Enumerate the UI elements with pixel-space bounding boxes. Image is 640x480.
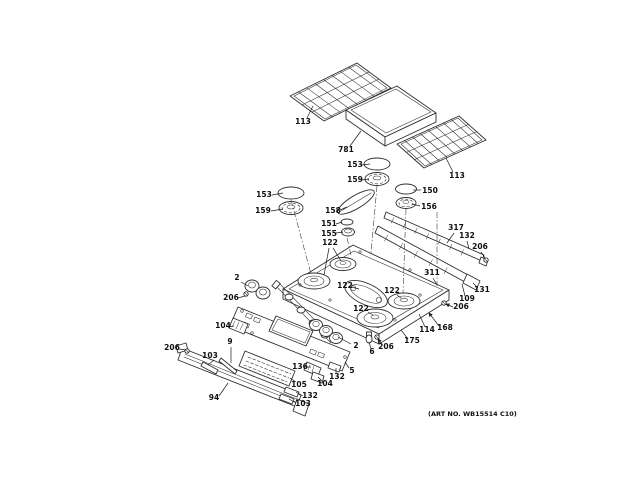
- part-label-175: 175: [401, 330, 420, 345]
- svg-text:151: 151: [321, 219, 337, 228]
- svg-text:131: 131: [474, 285, 490, 294]
- svg-text:175: 175: [404, 336, 420, 345]
- svg-text:159: 159: [255, 206, 271, 215]
- svg-text:9: 9: [227, 337, 232, 346]
- svg-text:150: 150: [422, 186, 438, 195]
- svg-text:5: 5: [349, 366, 354, 375]
- svg-text:156: 156: [421, 202, 437, 211]
- svg-text:311: 311: [424, 268, 440, 277]
- svg-text:94: 94: [209, 393, 219, 402]
- part-label-150: 150: [413, 186, 438, 195]
- igniter-6: [366, 332, 372, 343]
- svg-text:206: 206: [223, 293, 239, 302]
- part-label-206: 206: [446, 302, 469, 311]
- exploded-parts-diagram: 1137811131531591531591501561581511551223…: [0, 0, 640, 480]
- svg-text:113: 113: [295, 117, 311, 126]
- svg-text:168: 168: [437, 323, 453, 332]
- svg-text:122: 122: [353, 304, 369, 313]
- control-knobs-loose: [245, 280, 270, 299]
- svg-text:132: 132: [459, 231, 475, 240]
- svg-text:155: 155: [321, 229, 337, 238]
- burner-base-122-back: [330, 258, 356, 271]
- part-label-113: 113: [446, 158, 465, 180]
- svg-text:132: 132: [329, 372, 345, 381]
- cap-155: [342, 228, 355, 236]
- svg-text:103: 103: [202, 351, 218, 360]
- svg-text:6: 6: [369, 347, 374, 356]
- svg-text:206: 206: [164, 343, 180, 352]
- ring-151: [341, 219, 353, 225]
- art-number: (ART NO. WB15514 C10): [428, 410, 517, 418]
- svg-text:153: 153: [256, 190, 272, 199]
- svg-text:781: 781: [338, 145, 354, 154]
- svg-text:153: 153: [347, 160, 363, 169]
- burner-base-122-right: [388, 293, 420, 309]
- svg-text:206: 206: [453, 302, 469, 311]
- svg-text:122: 122: [322, 238, 338, 247]
- svg-text:2: 2: [234, 273, 239, 282]
- part-label-155: 155: [321, 229, 343, 238]
- oval-burner-cap-158: [335, 186, 378, 219]
- svg-text:122: 122: [384, 286, 400, 295]
- svg-text:114: 114: [419, 325, 435, 334]
- burner-ring-150: [396, 184, 417, 194]
- part-label-131: 131: [473, 283, 490, 294]
- svg-text:206: 206: [472, 242, 488, 251]
- part-label-6: 6: [369, 342, 375, 356]
- svg-text:104: 104: [215, 321, 231, 330]
- burner-base-122-left: [298, 273, 330, 289]
- svg-text:103: 103: [295, 399, 311, 408]
- part-label-781: 781: [338, 131, 361, 154]
- burner-head-156: [396, 198, 416, 209]
- svg-text:159: 159: [347, 175, 363, 184]
- part-label-206: 206: [223, 293, 245, 302]
- svg-text:113: 113: [449, 171, 465, 180]
- burner-head-159-left: [279, 202, 303, 215]
- part-label-94: 94: [209, 383, 228, 402]
- svg-text:122: 122: [337, 281, 353, 290]
- svg-text:2: 2: [353, 341, 358, 350]
- svg-text:206: 206: [378, 342, 394, 351]
- part-label-151: 151: [321, 219, 342, 228]
- svg-text:136: 136: [292, 362, 308, 371]
- svg-text:158: 158: [325, 206, 341, 215]
- part-label-5: 5: [345, 362, 355, 375]
- svg-text:105: 105: [291, 380, 307, 389]
- part-label-9: 9: [227, 337, 232, 363]
- part-label-105: 105: [290, 378, 307, 389]
